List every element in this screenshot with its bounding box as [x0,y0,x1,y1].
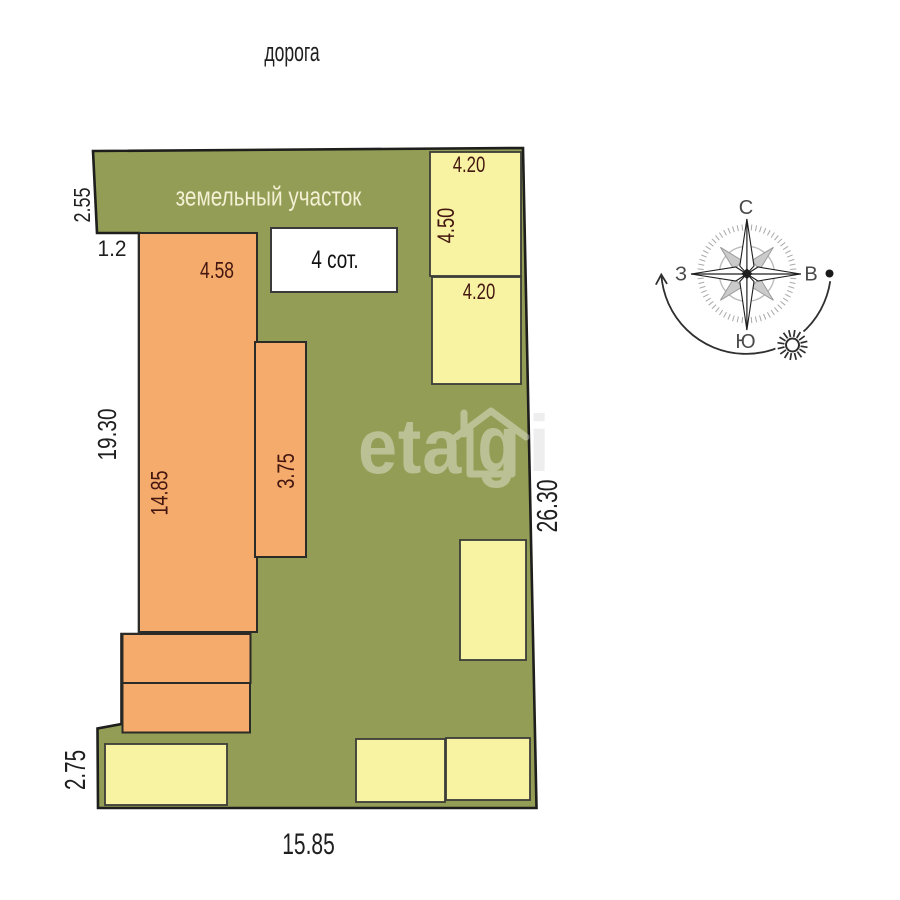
svg-text:3.75: 3.75 [272,453,299,488]
svg-text:4.58: 4.58 [200,259,234,284]
svg-text:Ю: Ю [735,331,755,353]
svg-text:1.2: 1.2 [97,237,126,262]
svg-text:19.30: 19.30 [93,408,122,460]
svg-text:С: С [739,197,753,219]
svg-text:2.75: 2.75 [60,750,92,790]
svg-text:eta: eta [358,403,462,490]
svg-text:4.20: 4.20 [453,153,486,178]
svg-text:дорога: дорога [264,36,320,67]
svg-text:В: В [804,264,817,286]
svg-text:i: i [528,399,550,488]
svg-text:14.85: 14.85 [147,470,173,515]
svg-text:2.55: 2.55 [70,188,96,223]
svg-text:4.50: 4.50 [432,208,459,244]
svg-text:земельный участок: земельный участок [176,182,362,212]
svg-text:15.85: 15.85 [282,828,335,860]
svg-text:З: З [675,264,687,286]
svg-text:4 сот.: 4 сот. [311,246,358,274]
svg-text:4.20: 4.20 [463,280,496,305]
